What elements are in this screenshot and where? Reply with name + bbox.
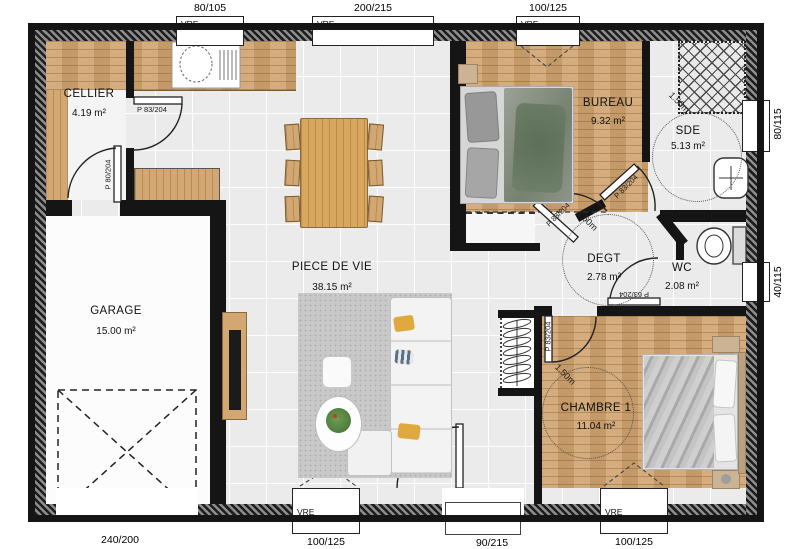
- garage-door-dim: 240/200: [85, 534, 155, 546]
- exterior-wall-left: [28, 23, 35, 522]
- window-dim-top-bureau: 100/125: [516, 2, 580, 14]
- entry-door-dim: 90/215: [464, 537, 520, 549]
- exterior-wall: [28, 23, 764, 522]
- window-dim-right-wc: 40/115: [772, 260, 784, 304]
- window-dim-right-sde: 80/115: [772, 102, 784, 146]
- window-dim-bottom-living: 100/125: [292, 536, 360, 548]
- exterior-wall-right: [757, 23, 764, 522]
- floor-plan: 1.50m 1.50m 1.50m CELLIER 4.19 m² GARAGE…: [0, 0, 800, 549]
- exterior-wall-bottom: [28, 515, 764, 522]
- window-dim-top-living: 200/215: [312, 2, 434, 14]
- window-dim-bottom-chambre: 100/125: [600, 536, 668, 548]
- exterior-wall-top: [28, 23, 764, 30]
- window-dim-top-cellier: 80/105: [176, 2, 244, 14]
